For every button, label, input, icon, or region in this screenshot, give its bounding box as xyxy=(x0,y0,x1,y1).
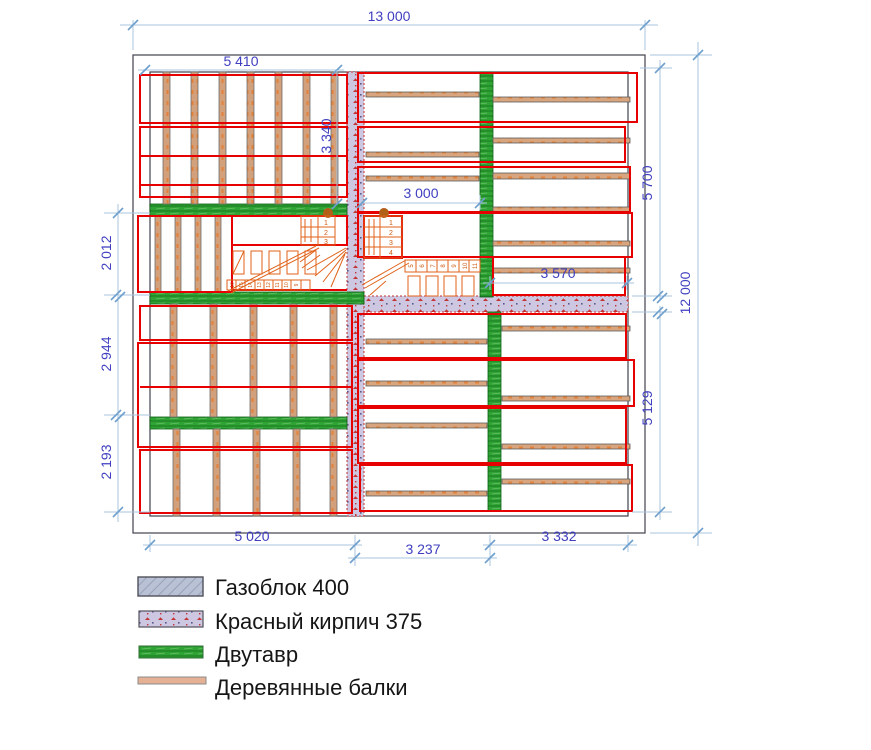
stairs-left: 1 2 3 16 15 14 13 12 11 10 9 xyxy=(227,208,346,293)
joists-lower-band-2 xyxy=(173,429,337,516)
joists-middle-band xyxy=(155,216,221,292)
stair-step-number: 10 xyxy=(463,262,469,269)
stair-step-number: 6 xyxy=(420,264,426,268)
legend-item-gasblock: Газоблок 400 xyxy=(138,575,349,600)
dim-overall-width: 13 000 xyxy=(120,8,658,50)
dim-right-room-width: 3 000 xyxy=(355,185,487,210)
stair-step-number: 8 xyxy=(441,264,447,268)
gasblock-swatch xyxy=(138,577,203,596)
svg-text:2 944: 2 944 xyxy=(98,336,114,371)
legend-label: Красный кирпич 375 xyxy=(215,609,422,634)
svg-text:3 237: 3 237 xyxy=(405,541,440,557)
stair-number-row-right: 5 6 7 8 9 10 11 xyxy=(405,260,480,272)
wood-beam-swatch xyxy=(138,677,206,684)
beams-top-right-of-column xyxy=(493,97,630,273)
stair-step-number: 1 xyxy=(389,220,393,227)
svg-text:5 020: 5 020 xyxy=(234,528,269,544)
stair-step-number: 14 xyxy=(248,282,254,288)
stair-number-row-left: 16 15 14 13 12 11 10 9 xyxy=(227,280,310,290)
svg-text:5 700: 5 700 xyxy=(639,165,655,200)
ibeam-horizontal-2 xyxy=(150,292,364,304)
ibeam-horizontal-1 xyxy=(150,204,347,216)
beams-bottom-left-of-column xyxy=(366,339,487,496)
svg-text:2 193: 2 193 xyxy=(98,444,114,479)
legend-item-wood-beam: Деревянные балки xyxy=(138,675,408,700)
ibeam-horizontal-3 xyxy=(150,417,347,429)
svg-text:5 129: 5 129 xyxy=(639,390,655,425)
stair-step-number: 13 xyxy=(257,282,263,288)
legend-item-red-brick: Красный кирпич 375 xyxy=(139,609,422,634)
svg-text:13 000: 13 000 xyxy=(368,8,411,24)
stair-step-number: 9 xyxy=(294,283,300,286)
stairs-right: 1 2 3 4 5 6 7 8 9 10 11 xyxy=(362,208,480,296)
stair-step-number: 3 xyxy=(324,239,328,246)
dim-left-chain: 2 012 2 944 2 193 xyxy=(98,204,150,522)
stair-step-number: 2 xyxy=(324,230,328,237)
dim-right-chain: 5 700 5 129 xyxy=(632,60,672,520)
svg-text:2 012: 2 012 xyxy=(98,235,114,270)
svg-text:3 000: 3 000 xyxy=(403,185,438,201)
stair-step-number: 12 xyxy=(266,282,272,288)
stair-step-number: 2 xyxy=(389,230,393,237)
stair-treads-right xyxy=(408,276,474,296)
stair-step-number: 11 xyxy=(473,262,479,269)
brick-wall-horizontal xyxy=(364,296,628,312)
svg-text:3 340: 3 340 xyxy=(318,118,334,153)
stair-step-number: 15 xyxy=(239,282,245,288)
drawing-canvas: 1 2 3 16 15 14 13 12 11 10 9 xyxy=(0,0,871,750)
stair-step-number: 9 xyxy=(452,264,458,268)
svg-text:3 332: 3 332 xyxy=(541,528,576,544)
stair-step-number: 7 xyxy=(431,264,437,268)
stair-step-number: 10 xyxy=(284,282,290,288)
stair-step-number: 4 xyxy=(389,250,393,257)
dim-bottom-chain: 5 020 3 237 3 332 xyxy=(143,528,637,566)
i-beam-swatch xyxy=(139,646,203,658)
legend-label: Деревянные балки xyxy=(215,675,408,700)
ibeam-vertical-top xyxy=(480,72,493,297)
joists-lower-band-1 xyxy=(170,304,337,417)
svg-text:3 570: 3 570 xyxy=(540,265,575,281)
stair-step-number: 11 xyxy=(275,282,281,287)
legend-label: Газоблок 400 xyxy=(215,575,349,600)
legend: Газоблок 400 Красный кирпич 375 Двутавр … xyxy=(138,575,422,700)
floor-plan-drawing: 1 2 3 16 15 14 13 12 11 10 9 xyxy=(0,0,871,750)
stair-winder-lines-right xyxy=(362,260,409,295)
svg-text:12 000: 12 000 xyxy=(677,271,693,314)
stair-step-number: 5 xyxy=(409,264,415,268)
ibeam-vertical-bottom xyxy=(488,312,501,511)
svg-text:5 410: 5 410 xyxy=(223,53,258,69)
red-brick-swatch xyxy=(139,611,203,627)
stair-step-number: 16 xyxy=(230,282,236,288)
legend-label: Двутавр xyxy=(215,642,298,667)
legend-item-i-beam: Двутавр xyxy=(139,642,298,667)
stair-step-number: 1 xyxy=(324,220,328,227)
stair-step-number: 3 xyxy=(389,240,393,247)
